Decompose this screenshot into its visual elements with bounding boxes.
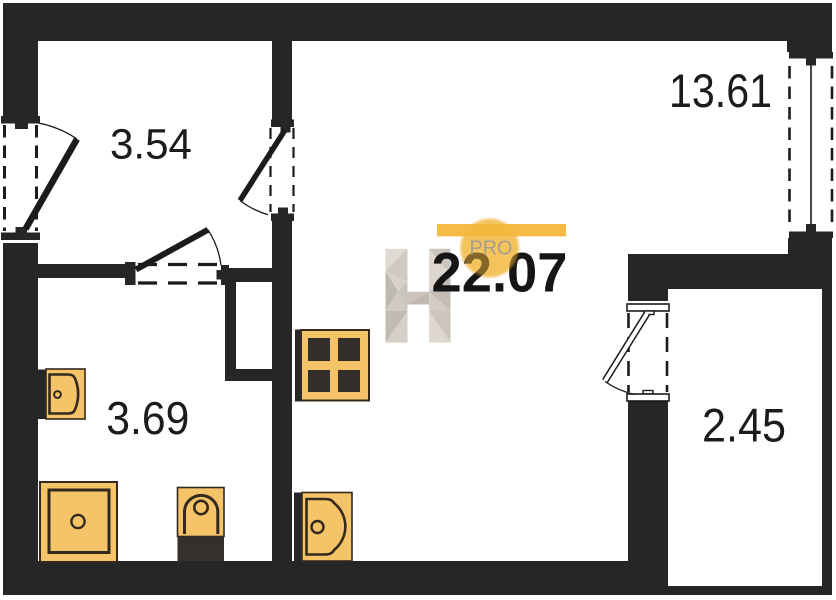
svg-text:3.54: 3.54 — [110, 121, 192, 169]
svg-text:2.45: 2.45 — [702, 400, 786, 453]
svg-text:PRO: PRO — [470, 237, 513, 260]
svg-text:3.69: 3.69 — [106, 392, 189, 444]
svg-text:13.61: 13.61 — [669, 65, 772, 118]
